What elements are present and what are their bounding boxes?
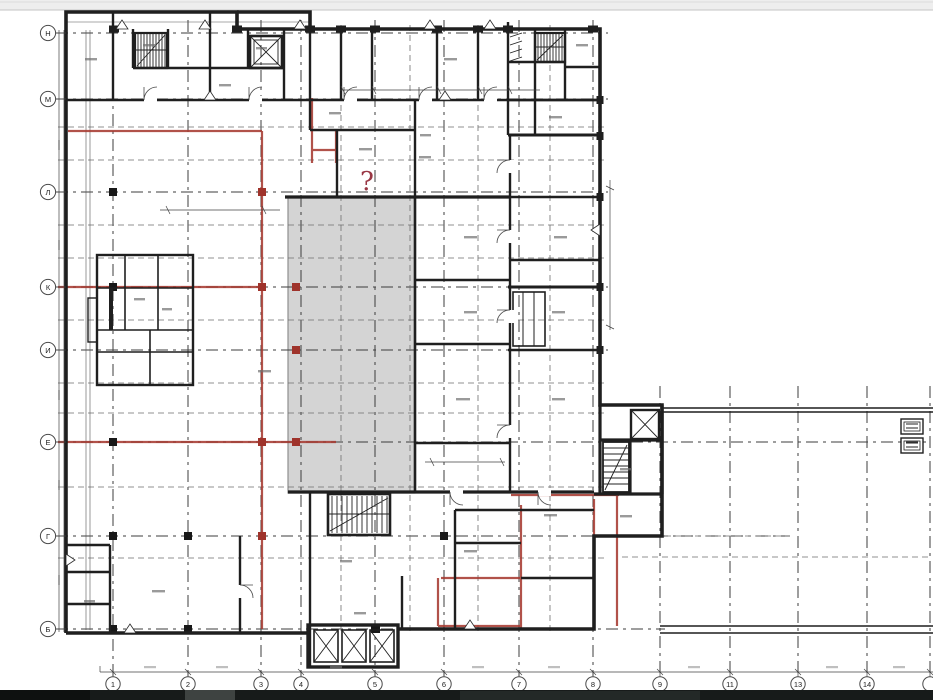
grid-column-bubble: 1 [106,672,120,691]
grid-bubbles-rows: Н М Л К И Е Г Б [40,25,66,636]
grid-column-bubble: 8 [586,672,600,691]
svg-text:Е: Е [45,438,50,447]
svg-text:3: 3 [259,680,263,689]
svg-text:5: 5 [373,680,377,689]
stairs-mid-right [603,442,629,492]
svg-text:И: И [45,346,50,355]
grid-column-bubble: 7 [512,672,526,691]
question-mark-annotation: ? [360,167,374,197]
grid-row-bubble: И [40,342,66,357]
grid-column-bubble: 5 [368,672,382,691]
left-dimension-chain [56,30,64,632]
elevator-bank-bottom [308,625,398,667]
svg-text:9: 9 [658,680,662,689]
stairs-top-left [135,33,167,68]
grid-row-bubble: Н [40,25,66,40]
grid-column-bubble: 13 [791,672,805,691]
svg-text:6: 6 [442,680,446,689]
svg-text:8: 8 [591,680,595,689]
louver-vent [510,33,522,61]
svg-text:2: 2 [186,680,190,689]
svg-text:К: К [46,283,51,292]
svg-text:13: 13 [794,680,802,689]
grid-column-bubble: 2 [181,672,195,691]
taskbar-strip[interactable] [0,690,933,700]
svg-text:Б: Б [46,625,51,634]
grid-column-bubble: 14 [860,672,874,691]
grid-column-bubble: 4 [294,672,308,691]
elevator-top-left [250,36,282,68]
grid-column-bubble: 9 [653,672,667,691]
stairs-top-right [510,33,565,62]
svg-text:М: М [45,95,51,104]
svg-text:14: 14 [863,680,871,689]
svg-text:Г: Г [46,532,50,541]
grid-row-bubble: К [40,279,66,294]
stairs-bottom-center [328,494,390,535]
grid-column-bubble: 3 [254,672,268,691]
grid-row-bubble: Г [40,528,66,543]
svg-text:Л: Л [46,188,51,197]
grid-column-bubble: 6 [437,672,451,691]
grid-row-bubble: М [40,91,66,106]
grid-row-bubble: Б [40,621,66,636]
svg-text:7: 7 [517,680,521,689]
roof-equipment-unit [901,419,923,453]
svg-text:Н: Н [45,29,50,38]
grid-row-bubble: Л [40,184,66,199]
floor-plan-canvas: ? 1 2 3 4 5 6 7 8 9 11 13 14 Н М Л К И Е… [0,0,933,700]
svg-text:1: 1 [111,680,115,689]
svg-text:11: 11 [726,680,734,689]
taskbar-item-highlight [185,690,235,700]
svg-text:4: 4 [299,680,303,689]
grid-row-bubble: Е [40,434,66,449]
elevator-mid-right [631,410,659,439]
atrium-void [288,197,415,493]
floor-plan-screenshot: ? 1 2 3 4 5 6 7 8 9 11 13 14 Н М Л К И Е… [0,0,933,700]
top-window-strip [0,0,933,10]
grid-column-bubble [923,672,933,691]
bottom-dimension-line [100,666,933,675]
grid-column-bubble: 11 [723,672,737,691]
